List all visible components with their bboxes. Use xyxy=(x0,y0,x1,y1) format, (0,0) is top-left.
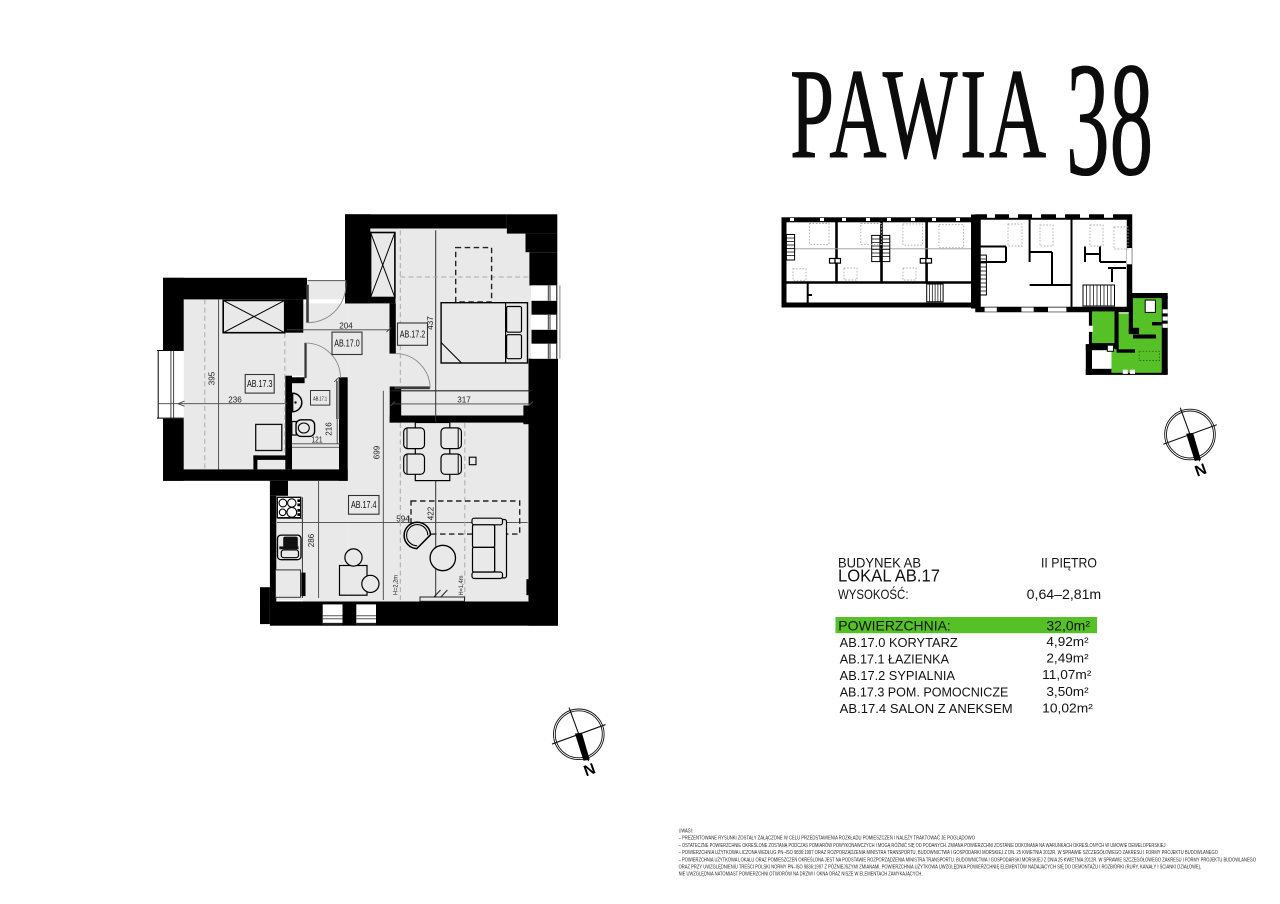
svg-text:AB.17.0: AB.17.0 xyxy=(334,339,360,350)
svg-text:121: 121 xyxy=(312,435,323,444)
svg-text:422: 422 xyxy=(426,506,435,520)
svg-text:AB.17.0 KORYTARZ: AB.17.0 KORYTARZ xyxy=(840,636,958,650)
svg-text:ORAZ PRZY UWZGLĘDNIENIU TREŚCI: ORAZ PRZY UWZGLĘDNIENIU TREŚCI POLSKI NO… xyxy=(679,863,1202,871)
svg-text:2,49m²: 2,49m² xyxy=(1046,652,1088,666)
svg-text:AB.17.4: AB.17.4 xyxy=(351,500,377,511)
svg-text:236: 236 xyxy=(228,395,242,404)
svg-text:NIE UWZGLĘDNIA NATOMIAST POWIE: NIE UWZGLĘDNIA NATOMIAST POWIERZCHNI OTW… xyxy=(679,871,923,878)
svg-text:N: N xyxy=(1193,461,1209,481)
svg-text:– OSTATECZNE POWIERZCHNIE OKRE: – OSTATECZNE POWIERZCHNIE OKREŚLONE ZOST… xyxy=(679,841,1166,849)
svg-text:204: 204 xyxy=(339,321,353,330)
svg-text:3,50m²: 3,50m² xyxy=(1046,685,1088,699)
svg-text:– POWIERZCHNIA UŻYTKOWA LOKALU: – POWIERZCHNIA UŻYTKOWA LOKALU ORAZ POMI… xyxy=(679,855,1257,863)
svg-text:699: 699 xyxy=(373,445,382,459)
svg-text:UWAGI:: UWAGI: xyxy=(679,829,694,835)
svg-text:POWIERZCHNIA:: POWIERZCHNIA: xyxy=(838,618,951,634)
svg-text:4,92m²: 4,92m² xyxy=(1046,635,1088,649)
svg-text:AB.17.4 SALON Z ANEKSEM: AB.17.4 SALON Z ANEKSEM xyxy=(840,702,1013,716)
svg-text:11,07m²: 11,07m² xyxy=(1042,668,1091,682)
svg-text:594: 594 xyxy=(396,514,410,523)
svg-text:AB.17.3: AB.17.3 xyxy=(247,379,273,390)
svg-text:– PREZENTOWANE RYSUNKI ZOSTAŁY: – PREZENTOWANE RYSUNKI ZOSTAŁY ZAŁĄCZONE… xyxy=(679,835,976,842)
svg-text:286: 286 xyxy=(307,533,316,547)
svg-text:AB.17.2: AB.17.2 xyxy=(400,330,426,341)
svg-text:N: N xyxy=(581,761,597,781)
svg-text:H=2,2m: H=2,2m xyxy=(392,575,399,595)
svg-text:10,02m²: 10,02m² xyxy=(1042,701,1093,715)
svg-text:AB.17.1 ŁAZIENKA: AB.17.1 ŁAZIENKA xyxy=(840,652,950,666)
svg-text:WYSOKOŚĆ:: WYSOKOŚĆ: xyxy=(838,585,909,602)
svg-text:LOKAL AB.17: LOKAL AB.17 xyxy=(838,566,940,586)
svg-text:H=1,4m: H=1,4m xyxy=(458,576,465,596)
svg-text:AB.17.1: AB.17.1 xyxy=(313,397,327,403)
svg-text:32,0m²: 32,0m² xyxy=(1046,617,1090,633)
svg-text:395: 395 xyxy=(208,371,217,385)
svg-text:– POWIERZCHNIA UŻYTKOWA LICZON: – POWIERZCHNIA UŻYTKOWA LICZONA WEDŁUG P… xyxy=(679,849,1219,856)
svg-text:II PIĘTRO: II PIĘTRO xyxy=(1041,555,1097,571)
svg-text:317: 317 xyxy=(457,396,471,405)
svg-text:AB.17.3 POM. POMOCNICZE: AB.17.3 POM. POMOCNICZE xyxy=(840,686,1009,700)
svg-text:216: 216 xyxy=(325,422,334,436)
svg-text:0,64–2,81m: 0,64–2,81m xyxy=(1027,586,1102,602)
svg-text:AB.17.2 SYPIALNIA: AB.17.2 SYPIALNIA xyxy=(840,669,956,683)
